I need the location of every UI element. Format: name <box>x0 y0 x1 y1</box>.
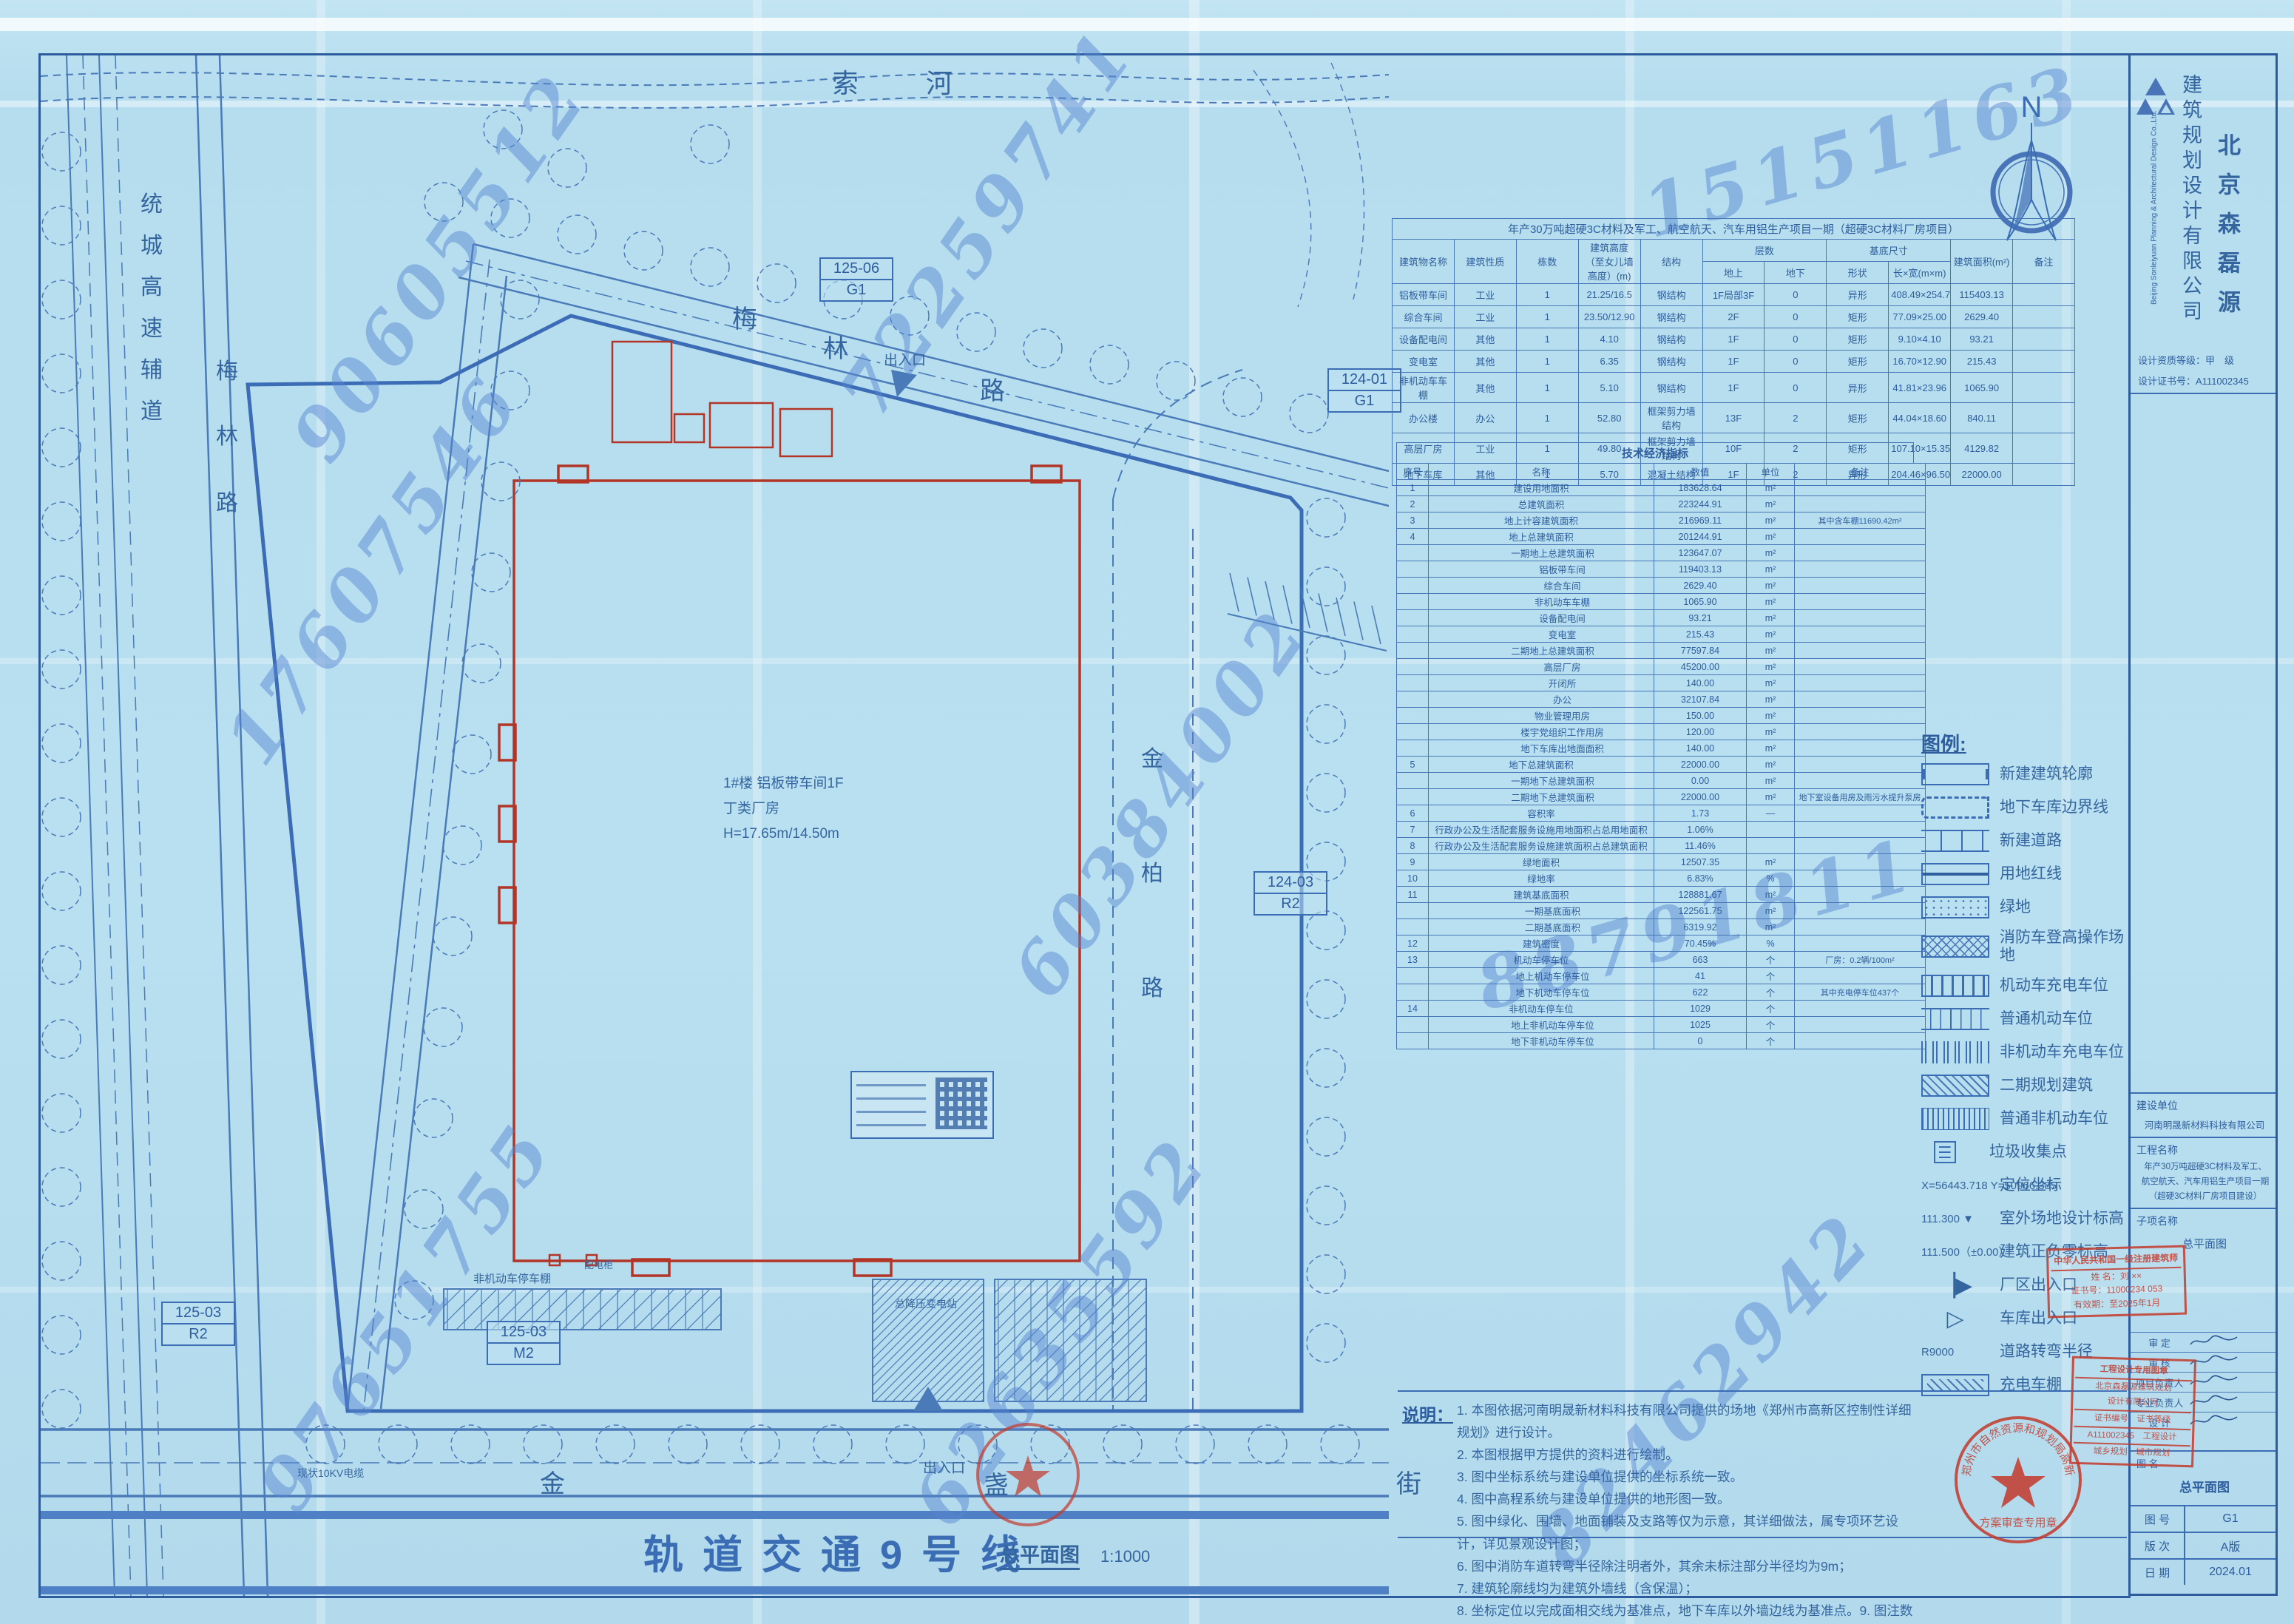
table-cell: m² <box>1747 512 1795 529</box>
table-cell: % <box>1747 870 1795 887</box>
table-cell: 设备配电间 <box>1429 610 1654 626</box>
road-name-char: 梅 <box>732 307 757 332</box>
legend-symbol-5-icon <box>1921 896 1989 918</box>
certificate-number: 设计证书号：A111002345 <box>2138 373 2249 388</box>
legend-item: 非机动车充电车位 <box>1921 1041 2125 1064</box>
table-row: 2总建筑面积223244.91m² <box>1397 496 1926 512</box>
road-name-char: 路 <box>980 379 1005 404</box>
road-name-char: 道 <box>141 401 163 423</box>
table-cell: 建筑基底面积 <box>1429 887 1654 903</box>
table-cell <box>1795 691 1926 708</box>
table-cell: 1025 <box>1654 1017 1747 1033</box>
note-item: 8. 坐标定位以完成面相交线为基准点，地下车库以外墙边线为基准点。9. 图注数据… <box>1457 1600 1920 1624</box>
table-cell: 地下车库出地面面积 <box>1429 740 1654 757</box>
table-cell: 1 <box>1516 351 1578 373</box>
table-cell: 1065.90 <box>1654 594 1747 610</box>
table-cell: m² <box>1747 594 1795 610</box>
legend-symbol-11-icon <box>1921 1108 1989 1130</box>
company-name-en: Beijing Sonleiyuan Planning & Architectu… <box>2151 75 2159 341</box>
table-cell: 其他 <box>1454 328 1516 351</box>
table-cell: 其中充电停车位437个 <box>1795 984 1926 1001</box>
table-cell: 容积率 <box>1429 805 1654 822</box>
table-cell: 0 <box>1765 306 1827 328</box>
table-cell: 3 <box>1397 512 1429 529</box>
table-row: 综合车间2629.40m² <box>1397 578 1926 594</box>
legend-label: 非机动车充电车位 <box>2000 1043 2124 1061</box>
note-item: 4. 图中高程系统与建设单位提供的地形图一致。 <box>1457 1488 1920 1510</box>
legend-item: 机动车充电车位 <box>1921 974 2125 998</box>
table-cell <box>1795 626 1926 643</box>
signature-label: 审 定 <box>2131 1336 2188 1350</box>
signature-scribble <box>2188 1373 2276 1393</box>
table-cell: 4 <box>1397 529 1429 545</box>
table-cell <box>2013 464 2075 486</box>
table-cell: 2629.40 <box>1654 578 1747 594</box>
table-cell <box>1397 594 1429 610</box>
table-cell <box>1795 659 1926 675</box>
river-name-char: 索 <box>832 70 859 97</box>
table-cell: 1 <box>1397 480 1429 496</box>
table-cell: 其他 <box>1454 351 1516 373</box>
drawing-name-value: 总平面图 <box>2136 1477 2273 1495</box>
legend-symbol-1-icon <box>1921 763 1989 785</box>
table-cell: m² <box>1747 496 1795 512</box>
table-row: 一期地下总建筑面积0.00m² <box>1397 773 1926 789</box>
table-row: 5地下总建筑面积22000.00m² <box>1397 757 1926 773</box>
svg-text:郑州市自然资源和规划局高新分局: 郑州市自然资源和规划局高新分局 <box>1952 1414 2076 1478</box>
table-row: 一期基底面积122561.75m² <box>1397 903 1926 919</box>
company-name-cn: 建筑规划设计有限公司 <box>2176 74 2205 348</box>
table-cell: 183628.64 <box>1654 480 1747 496</box>
column-header: 长×宽(m×m) <box>1889 262 1951 284</box>
table-cell: 办公 <box>1454 403 1516 433</box>
table-row: 地上机动车停车位41个 <box>1397 968 1926 984</box>
table-cell: 地上机动车停车位 <box>1429 968 1654 984</box>
table-cell: 建筑密度 <box>1429 936 1654 952</box>
legend-symbol-10-icon <box>1921 1075 1989 1097</box>
table-cell: m² <box>1747 578 1795 594</box>
table-cell <box>1795 643 1926 659</box>
note-item: 5. 图中绿化、围墙、地面铺装及支路等仅为示意，其详细做法，属专项环艺设计，详见… <box>1457 1510 1920 1554</box>
road-name-char: 高 <box>141 277 163 299</box>
table-cell <box>1397 610 1429 626</box>
legend-symbol-17-icon: ▷ <box>1921 1307 1989 1330</box>
table-row: 二期地下总建筑面积22000.00m²地下室设备用房及雨污水提升泵房 <box>1397 789 1926 805</box>
table-cell: 物业管理用房 <box>1429 708 1654 724</box>
legend-item: X=56443.718 Y=50966.385定位坐标 <box>1921 1174 2125 1197</box>
table-cell <box>1795 936 1926 952</box>
table-cell: 个 <box>1747 1001 1795 1017</box>
qr-caption-lines <box>852 1072 930 1137</box>
table-cell: 840.11 <box>1951 403 2013 433</box>
legend-item: 普通机动车位 <box>1921 1007 2125 1031</box>
table-cell: 1 <box>1516 306 1578 328</box>
signature-row: 审 定 <box>2131 1332 2276 1352</box>
note-item: 6. 图中消防车道转弯半径除注明者外，其余未标注部分半径均为9m； <box>1457 1555 1920 1577</box>
table-cell <box>1795 1001 1926 1017</box>
column-header: 建筑物名称 <box>1393 240 1455 284</box>
drawing-title: 总平面图 <box>1000 1546 1080 1570</box>
legend-symbol-7-icon <box>1921 975 1989 997</box>
table-cell: 5.10 <box>1578 373 1640 403</box>
table-cell: 综合车间 <box>1429 578 1654 594</box>
legend-symbol-2-icon <box>1921 796 1989 819</box>
legend-symbol-3-icon <box>1921 830 1989 852</box>
table-cell: 216969.11 <box>1654 512 1747 529</box>
road-name-char: 路 <box>216 493 238 515</box>
table-cell: 4129.82 <box>1951 433 2013 464</box>
table-row: 二期基底面积6319.92m² <box>1397 919 1926 936</box>
table-cell: 11.46% <box>1654 838 1747 854</box>
legend-title: 图例: <box>1921 729 2125 757</box>
gate-label: 出入口 <box>923 1461 965 1475</box>
legend-label: 用地红线 <box>2000 865 2062 883</box>
meta-row: 日 期2024.01 <box>2131 1558 2276 1585</box>
table-cell <box>1795 594 1926 610</box>
table-cell: 32107.84 <box>1654 691 1747 708</box>
table-cell: 223244.91 <box>1654 496 1747 512</box>
legend-label: 垃圾收集点 <box>1989 1143 2067 1161</box>
road-name-char: 统 <box>141 194 163 216</box>
table-cell: 钢结构 <box>1640 306 1702 328</box>
table-cell: 个 <box>1747 952 1795 968</box>
table-cell <box>1397 691 1429 708</box>
table-row: 设备配电间其他14.10钢结构1F0矩形9.10×4.1093.21 <box>1393 328 2075 351</box>
owner-label: 建设单位 <box>2136 1098 2178 1113</box>
legend-symbol-15-icon: 111.500（±0.00） <box>1921 1241 1989 1263</box>
table-cell: 44.04×18.60 <box>1889 403 1951 433</box>
svg-text:N: N <box>2021 91 2043 124</box>
table-cell: 1029 <box>1654 1001 1747 1017</box>
table-cell: 70.45% <box>1654 936 1747 952</box>
building-label: 1#楼 铝板带车间1F <box>723 777 844 791</box>
table-cell: 非机动车车棚 <box>1393 373 1455 403</box>
legend-item: 地下车库边界线 <box>1921 796 2125 819</box>
legend-symbol-19-icon <box>1921 1374 1989 1396</box>
legend-label: 普通非机动车位 <box>2000 1110 2108 1128</box>
table-cell <box>1795 675 1926 691</box>
table-cell: 绿地面积 <box>1429 854 1654 870</box>
legend-label: 新建道路 <box>2000 832 2062 850</box>
building-label: 丁类厂房 <box>723 802 779 816</box>
table-cell: m² <box>1747 659 1795 675</box>
qr-pixels <box>935 1077 987 1129</box>
table-cell: 地下机动车停车位 <box>1429 984 1654 1001</box>
owner-name: 河南明晟新材料科技有限公司 <box>2136 1117 2273 1131</box>
legend-symbol-12-icon <box>1934 1141 1956 1163</box>
table-cell: 0 <box>1654 1033 1747 1049</box>
grid-ref-box: 124-01 G1 <box>1327 368 1401 413</box>
table-row: 二期地上总建筑面积77597.84m² <box>1397 643 1926 659</box>
table-cell: m² <box>1747 757 1795 773</box>
table-cell <box>1397 724 1429 740</box>
table-row: 物业管理用房150.00m² <box>1397 708 1926 724</box>
table-cell <box>1397 675 1429 691</box>
table-cell: 行政办公及生活配套服务设施用地面积占总用地面积 <box>1429 822 1654 838</box>
table-cell: 办公楼 <box>1393 403 1455 433</box>
legend-label: 机动车充电车位 <box>2000 977 2108 995</box>
grid-ref-code: 125-06 <box>821 259 892 279</box>
table-cell <box>1397 578 1429 594</box>
table-cell: 二期地下总建筑面积 <box>1429 789 1654 805</box>
table-cell: 408.49×254.78 <box>1889 284 1951 306</box>
meta-row: 图 号G1 <box>2131 1505 2276 1532</box>
legend-label: 定位坐标 <box>2000 1177 2062 1194</box>
table-cell: 其他 <box>1454 373 1516 403</box>
table-cell: 23.50/12.90 <box>1578 306 1640 328</box>
table-cell: 地下非机动车停车位 <box>1429 1033 1654 1049</box>
notes-title: 说明： <box>1402 1401 1453 1426</box>
column-header: 形状 <box>1827 262 1889 284</box>
table-cell: m² <box>1747 561 1795 578</box>
project-name-line: 年产30万吨超硬3C材料及军工、 <box>2135 1160 2276 1172</box>
table-cell: 663 <box>1654 952 1747 968</box>
legend-label: 室外场地设计标高 <box>2000 1210 2124 1228</box>
river-name-char: 河 <box>926 70 953 97</box>
table-cell: 1.73 <box>1654 805 1747 822</box>
table-cell: 个 <box>1747 968 1795 984</box>
table-cell: 0 <box>1765 284 1827 306</box>
table-cell: 工业 <box>1454 306 1516 328</box>
table-cell <box>1795 578 1926 594</box>
table-cell <box>1397 561 1429 578</box>
meta-value: A版 <box>2185 1537 2276 1554</box>
table-cell: % <box>1747 936 1795 952</box>
review-round-stamp: 郑州市自然资源和规划局高新分局 方案审查专用章 <box>1952 1414 2084 1546</box>
legend-label: 二期规划建筑 <box>2000 1077 2093 1094</box>
table-row: 6容积率1.73— <box>1397 805 1926 822</box>
table-cell <box>1795 480 1926 496</box>
table-cell: 12 <box>1397 936 1429 952</box>
table-cell: 建设用地面积 <box>1429 480 1654 496</box>
table-cell: 矩形 <box>1827 328 1889 351</box>
table-cell <box>1795 708 1926 724</box>
table-cell: 2F <box>1702 306 1765 328</box>
road-name-char: 梅 <box>216 361 238 383</box>
table-cell <box>1795 838 1926 854</box>
table-cell: m² <box>1747 480 1795 496</box>
column-header: 基底尺寸 <box>1827 240 1951 262</box>
table-cell: 13F <box>1702 403 1765 433</box>
column-header: 数值 <box>1654 464 1747 480</box>
table-cell: 6.35 <box>1578 351 1640 373</box>
table-cell <box>1397 984 1429 1001</box>
grid-ref-box: 124-03 R2 <box>1253 871 1327 916</box>
legend-item: 垃圾收集点 <box>1921 1140 2125 1164</box>
table-cell: 140.00 <box>1654 675 1747 691</box>
table-cell: 地上总建筑面积 <box>1429 529 1654 545</box>
table-cell: — <box>1747 805 1795 822</box>
table-cell: 2 <box>1397 496 1429 512</box>
table-cell: 0 <box>1765 373 1827 403</box>
table-row: 12建筑密度70.45%% <box>1397 936 1926 952</box>
building-label: H=17.65m/14.50m <box>723 827 839 841</box>
table-cell: 150.00 <box>1654 708 1747 724</box>
legend-item: 普通非机动车位 <box>1921 1107 2125 1131</box>
table-cell: 钢结构 <box>1640 351 1702 373</box>
table-cell: 综合车间 <box>1393 306 1455 328</box>
legend-label: 普通机动车位 <box>2000 1010 2093 1028</box>
table-cell: 框架剪力墙结构 <box>1640 403 1702 433</box>
table-cell: 215.43 <box>1654 626 1747 643</box>
power-cabinet-label: 配电柜 <box>584 1260 613 1270</box>
table-cell: 16.70×12.90 <box>1889 351 1951 373</box>
table-row: 一期地上总建筑面积123647.07m² <box>1397 545 1926 561</box>
meta-value: 2024.01 <box>2185 1566 2276 1579</box>
table-cell <box>1795 854 1926 870</box>
legend-symbol-14-icon: 111.300 ▼ <box>1921 1208 1989 1230</box>
table-row: 1建设用地面积183628.64m² <box>1397 480 1926 496</box>
table-cell <box>1397 789 1429 805</box>
table-cell: 一期地下总建筑面积 <box>1429 773 1654 789</box>
fold-line <box>0 18 2294 31</box>
legend-symbol-6-icon <box>1921 936 1989 958</box>
stamp-line: 城乡规划 城市规划 <box>2073 1444 2190 1462</box>
table-cell: 设备配电间 <box>1393 328 1455 351</box>
legend-symbol-9-icon <box>1921 1041 1989 1063</box>
road-name-char: 林 <box>823 336 848 362</box>
road-name-char: 城 <box>141 235 163 257</box>
meta-row: 版 次A版 <box>2131 1532 2276 1558</box>
table-cell: 1F <box>1702 328 1765 351</box>
table-cell: 矩形 <box>1827 403 1889 433</box>
table-cell: m² <box>1747 724 1795 740</box>
table-cell <box>1397 708 1429 724</box>
table-cell: m² <box>1747 903 1795 919</box>
meta-label: 日 期 <box>2131 1560 2185 1585</box>
table-cell: 个 <box>1747 1033 1795 1049</box>
note-item: 3. 图中坐标系统与建设单位提供的坐标系统一致。 <box>1457 1466 1920 1488</box>
rail-line-label: 轨道交通9号线 <box>643 1535 1040 1575</box>
table-cell: m² <box>1747 708 1795 724</box>
table-cell: 矩形 <box>1827 306 1889 328</box>
table-cell <box>2013 351 2075 373</box>
table-cell <box>1795 724 1926 740</box>
legend-item: 绿地 <box>1921 896 2125 919</box>
table-row: 综合车间工业123.50/12.90钢结构2F0矩形77.09×25.00262… <box>1393 306 2075 328</box>
road-name-char: 辅 <box>141 359 163 382</box>
table-cell: 铝板带车间 <box>1429 561 1654 578</box>
legend-item: 111.300 ▼室外场地设计标高 <box>1921 1207 2125 1231</box>
table-cell <box>1795 887 1926 903</box>
legend-label: 新建建筑轮廓 <box>2000 765 2093 783</box>
table-cell: 0.00 <box>1654 773 1747 789</box>
table-cell <box>1795 529 1926 545</box>
legend-item: 新建建筑轮廓 <box>1921 762 2125 786</box>
table-cell: 22000.00 <box>1654 757 1747 773</box>
table-cell <box>1795 805 1926 822</box>
substation-label: 总降压变电站 <box>895 1299 957 1309</box>
column-header: 层数 <box>1702 240 1827 262</box>
road-name-char: 路 <box>1141 978 1163 1000</box>
table-cell <box>1795 1033 1926 1049</box>
signature-scribble <box>2188 1353 2276 1373</box>
table-cell: 93.21 <box>1951 328 2013 351</box>
table-cell: 10 <box>1397 870 1429 887</box>
road-name-char: 柏 <box>1141 863 1163 885</box>
table-cell: 非机动车停车位 <box>1429 1001 1654 1017</box>
table-row: 8行政办公及生活配套服务设施建筑面积占总建筑面积11.46% <box>1397 838 1926 854</box>
table-cell <box>1795 1017 1926 1033</box>
table-row: 设备配电间93.21m² <box>1397 610 1926 626</box>
table-cell: 其中含车棚11690.42m² <box>1795 512 1926 529</box>
grid-ref-code: 125-03 <box>163 1303 234 1323</box>
road-name-char: 金 <box>540 1472 565 1497</box>
table-cell: 5 <box>1397 757 1429 773</box>
table-cell: 绿地率 <box>1429 870 1654 887</box>
legend-symbol-13-icon: X=56443.718 Y=50966.385 <box>1921 1174 1989 1197</box>
table-row: 办公32107.84m² <box>1397 691 1926 708</box>
table-cell <box>1397 643 1429 659</box>
grid-ref-code: 125-03 <box>488 1322 559 1342</box>
column-header: 备注 <box>1795 464 1926 480</box>
table-cell: m² <box>1747 740 1795 757</box>
table-cell: 93.21 <box>1654 610 1747 626</box>
table-cell <box>2013 306 2075 328</box>
table-cell: m² <box>1747 545 1795 561</box>
plan-round-stamp <box>975 1421 1081 1528</box>
table-cell: 41.81×23.96 <box>1889 373 1951 403</box>
table-cell: 13 <box>1397 952 1429 968</box>
divider <box>1398 1390 2127 1392</box>
table-cell: 一期基底面积 <box>1429 903 1654 919</box>
grid-ref-zone: R2 <box>1255 893 1326 914</box>
table-row: 4地上总建筑面积201244.91m² <box>1397 529 1926 545</box>
qr-code <box>850 1071 994 1139</box>
project-name-line: 航空航天、汽车用铝生产项目一期 <box>2135 1175 2276 1187</box>
table-cell: 异形 <box>1827 284 1889 306</box>
table-cell: 矩形 <box>1827 351 1889 373</box>
table-row: 14非机动车停车位1029个 <box>1397 1001 1926 1017</box>
table-row: 铝板带车间工业121.25/16.5钢结构1F局部3F0异形408.49×254… <box>1393 284 2075 306</box>
indicators-table: 技术经济指标 序号名称数值单位备注1建设用地面积183628.64m²2总建筑面… <box>1396 442 1914 1049</box>
column-header: 结构 <box>1640 240 1702 284</box>
signature-scribble <box>2188 1333 2276 1353</box>
table-cell: 201244.91 <box>1654 529 1747 545</box>
table-cell: 钢结构 <box>1640 373 1702 403</box>
table-row: 10绿地率6.83%% <box>1397 870 1926 887</box>
bike-shed-label: 非机动车停车棚 <box>473 1273 551 1285</box>
table-cell: 变电室 <box>1393 351 1455 373</box>
table-cell: 6.83% <box>1654 870 1747 887</box>
grid-ref-box: 125-03 R2 <box>161 1302 235 1346</box>
table-cell: 119403.13 <box>1654 561 1747 578</box>
column-header: 备注 <box>2013 240 2075 284</box>
project-label: 工程名称 <box>2136 1143 2178 1157</box>
table-cell: 钢结构 <box>1640 328 1702 351</box>
table-cell: 4.10 <box>1578 328 1640 351</box>
table-cell: 铝板带车间 <box>1393 284 1455 306</box>
project-name-line: （超硬3C材料厂房项目建设） <box>2135 1190 2276 1202</box>
table-row: 高层厂房45200.00m² <box>1397 659 1926 675</box>
table-row: 地上非机动车停车位1025个 <box>1397 1017 1926 1033</box>
table-cell <box>1397 1033 1429 1049</box>
table-cell <box>1795 740 1926 757</box>
table-cell: 1 <box>1516 328 1578 351</box>
table-row: 11建筑基底面积128881.67m² <box>1397 887 1926 903</box>
table-cell: 非机动车车棚 <box>1429 594 1654 610</box>
legend-symbol-18-icon: R9000 <box>1921 1341 1989 1363</box>
table-cell: 41 <box>1654 968 1747 984</box>
table-cell <box>1397 545 1429 561</box>
table-cell: 变电室 <box>1429 626 1654 643</box>
svg-text:方案审查专用章: 方案审查专用章 <box>1979 1516 2057 1529</box>
blueprint-sheet: 90605512 72259741 15151163 17607546 6038… <box>0 0 2294 1624</box>
table-cell: 1065.90 <box>1951 373 2013 403</box>
table-cell <box>1397 1017 1429 1033</box>
table-row: 9绿地面积12507.35m² <box>1397 854 1926 870</box>
table-row: 地下车库出地面面积140.00m² <box>1397 740 1926 757</box>
